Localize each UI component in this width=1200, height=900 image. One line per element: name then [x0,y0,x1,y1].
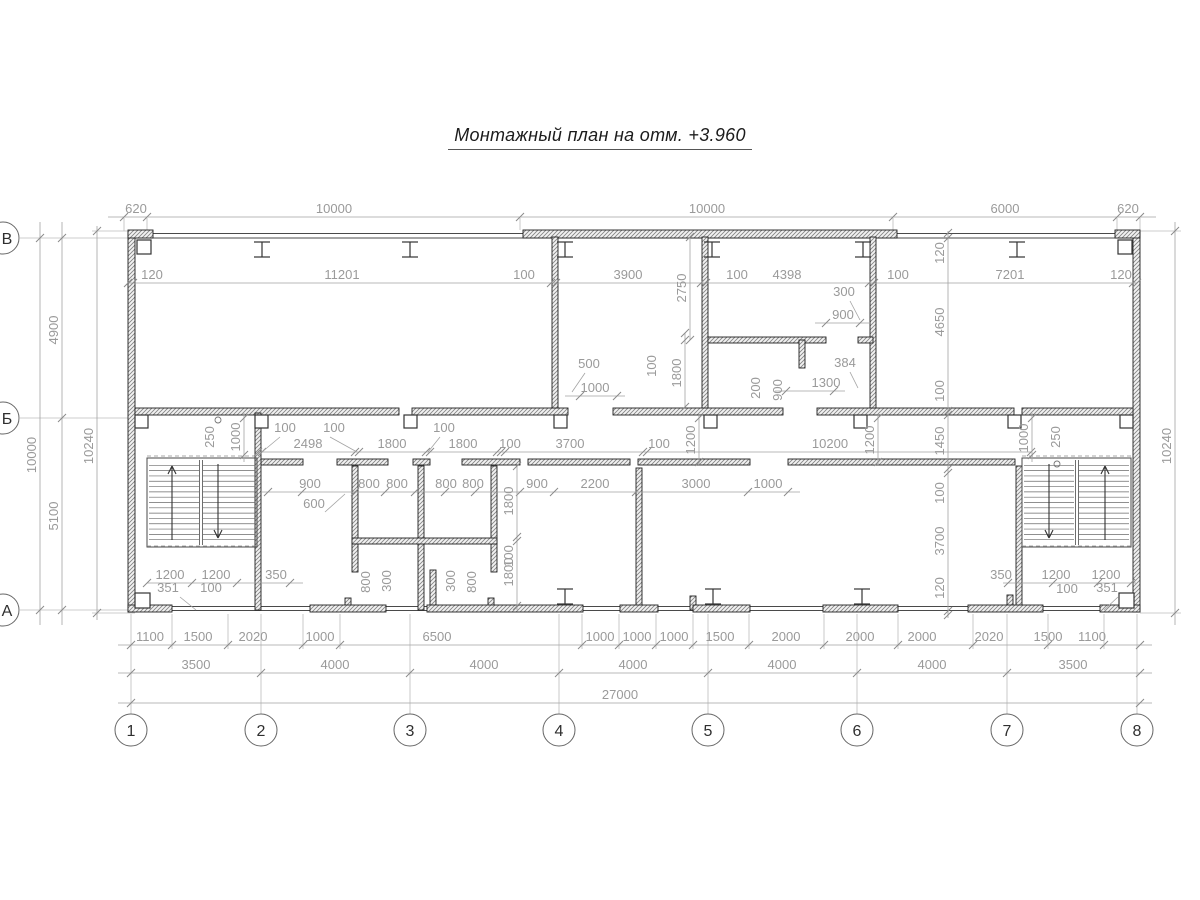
dim-label: 3700 [556,436,585,451]
column-square [135,593,150,608]
wall-segment [491,466,497,572]
dim-label: 120 [1110,267,1132,282]
dim-label: 100 [887,267,909,282]
dim-label: 300 [379,570,394,592]
dim-label: 120 [141,267,163,282]
dim-label: 1500 [1034,629,1063,644]
axis-label: Б [2,411,13,428]
dim-label: 600 [303,496,325,511]
wall-segment [430,570,436,610]
column-square [1119,593,1134,608]
wall-segment [638,459,750,465]
dim-label: 2020 [239,629,268,644]
dim-label: 120 [932,242,947,264]
dim-label: 100 [1056,581,1078,596]
dim-label: 4000 [619,657,648,672]
axis-label: 4 [555,723,564,740]
leader-line [850,372,858,388]
stair-arrow-head [1045,530,1049,538]
stair-arrow-head [218,530,222,538]
dim-label: 1000 [1016,424,1031,453]
wall-segment [128,230,153,238]
dim-label: 1200 [1042,567,1071,582]
wall-segment [788,459,1015,465]
dim-label: 100 [433,420,455,435]
dim-label: 2200 [581,476,610,491]
dim-label: 1000 [623,629,652,644]
axis-label: 5 [704,723,713,740]
dim-label: 2750 [674,274,689,303]
dim-label: 100 [932,380,947,402]
dim-label: 4000 [768,657,797,672]
dim-label: 800 [464,571,479,593]
wall-segment [702,237,708,408]
dim-label: 350 [990,567,1012,582]
dim-label: 100 [644,355,659,377]
wall-segment [613,408,783,415]
dim-label: 2000 [772,629,801,644]
wall-segment [412,408,568,415]
dim-label: 7201 [996,267,1025,282]
dim-label: 3900 [614,267,643,282]
column-square [554,415,567,428]
dim-label: 5100 [46,502,61,531]
dim-label: 2000 [908,629,937,644]
dim-label: 100 [726,267,748,282]
dim-label: 27000 [602,687,638,702]
dim-label: 10000 [689,201,725,216]
dim-label: 10000 [24,437,39,473]
dim-label: 1000 [754,476,783,491]
wall-segment [620,605,658,612]
wall-segment [255,413,261,610]
wall-segment [352,466,358,572]
dim-label: 1100 [1078,629,1106,644]
dim-label: 1500 [706,629,735,644]
dim-label: 4000 [321,657,350,672]
dim-label: 1800 [669,359,684,388]
wall-segment [1016,466,1022,610]
dim-label: 100 [501,545,516,567]
wall-segment [1115,230,1140,238]
wall-segment [261,459,303,465]
wall-segment [128,232,135,612]
axis-label: 8 [1133,723,1142,740]
dim-label: 250 [1048,426,1063,448]
axis-label: 2 [257,723,266,740]
column-square [255,415,268,428]
column-square [1120,415,1133,428]
dim-label: 300 [833,284,855,299]
dim-label: 200 [748,377,763,399]
wall-segment [799,340,805,368]
axis-label: В [2,231,13,248]
dim-label: 800 [386,476,408,491]
stair-arrow-head [1049,530,1053,538]
dim-label: 10240 [81,428,96,464]
dim-label: 10200 [812,436,848,451]
dim-label: 900 [832,307,854,322]
dim-label: 800 [435,476,457,491]
dim-label: 384 [834,355,856,370]
dim-label: 100 [513,267,535,282]
wall-segment [427,605,583,612]
axis-label: 7 [1003,723,1012,740]
dim-label: 2020 [975,629,1004,644]
dim-label: 1300 [812,375,841,390]
dim-label: 1100 [136,629,164,644]
dim-label: 1000 [660,629,689,644]
floor-plan-page: Монтажный план на отм. +3.960 6201000010… [0,0,1200,900]
stair-arrow-head [172,466,176,474]
column-square [137,240,151,254]
wall-segment [817,408,1014,415]
dim-label: 100 [932,482,947,504]
column-square [1118,240,1132,254]
dim-label: 4000 [918,657,947,672]
dim-label: 100 [200,580,222,595]
column-square [404,415,417,428]
dim-label: 6000 [991,201,1020,216]
dim-label: 100 [648,436,670,451]
dim-label: 1000 [586,629,615,644]
stair-arrow-head [168,466,172,474]
dim-label: 1800 [449,436,478,451]
dim-label: 1000 [228,423,243,452]
wall-segment [413,459,430,465]
wall-segment [1133,232,1140,612]
dim-label: 1500 [184,629,213,644]
dim-label: 3500 [1059,657,1088,672]
leader-line [325,494,345,512]
wall-segment [310,605,386,612]
dim-label: 120 [932,577,947,599]
dim-label: 300 [443,570,458,592]
dim-label: 800 [462,476,484,491]
dim-label: 10240 [1159,428,1174,464]
wall-segment [135,408,399,415]
stair-marker [215,417,221,423]
dim-label: 1200 [683,426,698,455]
dim-label: 250 [202,426,217,448]
dim-label: 3700 [932,527,947,556]
wall-segment [1022,408,1133,415]
dim-label: 620 [1117,201,1139,216]
dim-label: 1000 [581,380,610,395]
leader-line [330,437,357,452]
dim-label: 11201 [324,267,359,282]
stair-arrow-head [1105,466,1109,474]
column-square [704,415,717,428]
stair-arrow-head [214,530,218,538]
dim-label: 900 [770,379,785,401]
dim-label: 800 [358,571,373,593]
wall-segment [870,237,876,408]
dim-label: 900 [299,476,321,491]
dim-label: 500 [578,356,600,371]
dim-label: 4398 [773,267,802,282]
dim-label: 4650 [932,308,947,337]
dim-label: 100 [274,420,296,435]
dim-label: 900 [526,476,548,491]
dim-label: 6500 [423,629,452,644]
axis-label: 6 [853,723,862,740]
dim-label: 4900 [46,316,61,345]
wall-segment [337,459,388,465]
dim-label: 100 [499,436,521,451]
wall-segment [552,237,558,408]
wall-segment [823,605,898,612]
stair-arrow-head [1101,466,1105,474]
wall-segment [708,337,826,343]
dim-label: 351 [157,580,179,595]
dim-label: 3500 [182,657,211,672]
dim-label: 4000 [470,657,499,672]
dim-label: 800 [358,476,380,491]
dim-label: 1200 [862,426,877,455]
leader-line [262,437,280,452]
dim-label: 3000 [682,476,711,491]
wall-segment [858,337,873,343]
wall-segment [968,605,1043,612]
dim-label: 351 [1096,580,1118,595]
dim-label: 1000 [306,629,335,644]
wall-segment [352,538,497,544]
wall-segment [523,230,897,238]
axis-label: А [2,603,13,620]
wall-segment [528,459,630,465]
dim-label: 1800 [501,487,516,516]
dim-label: 620 [125,201,147,216]
drawing-title: Монтажный план на отм. +3.960 [0,125,1200,150]
column-square [135,415,148,428]
dim-label: 2000 [846,629,875,644]
dim-label: 10000 [316,201,352,216]
axis-label: 1 [127,723,136,740]
dim-label: 1450 [932,427,947,456]
stair-marker [1054,461,1060,467]
leader-line [428,437,440,452]
dim-label: 350 [265,567,287,582]
dim-label: 100 [323,420,345,435]
dim-label: 2498 [294,436,323,451]
dim-label: 1800 [378,436,407,451]
leader-line [180,597,196,610]
wall-segment [462,459,520,465]
wall-segment [693,605,750,612]
axis-label: 3 [406,723,415,740]
drawing-title-text: Монтажный план на отм. +3.960 [448,125,752,150]
